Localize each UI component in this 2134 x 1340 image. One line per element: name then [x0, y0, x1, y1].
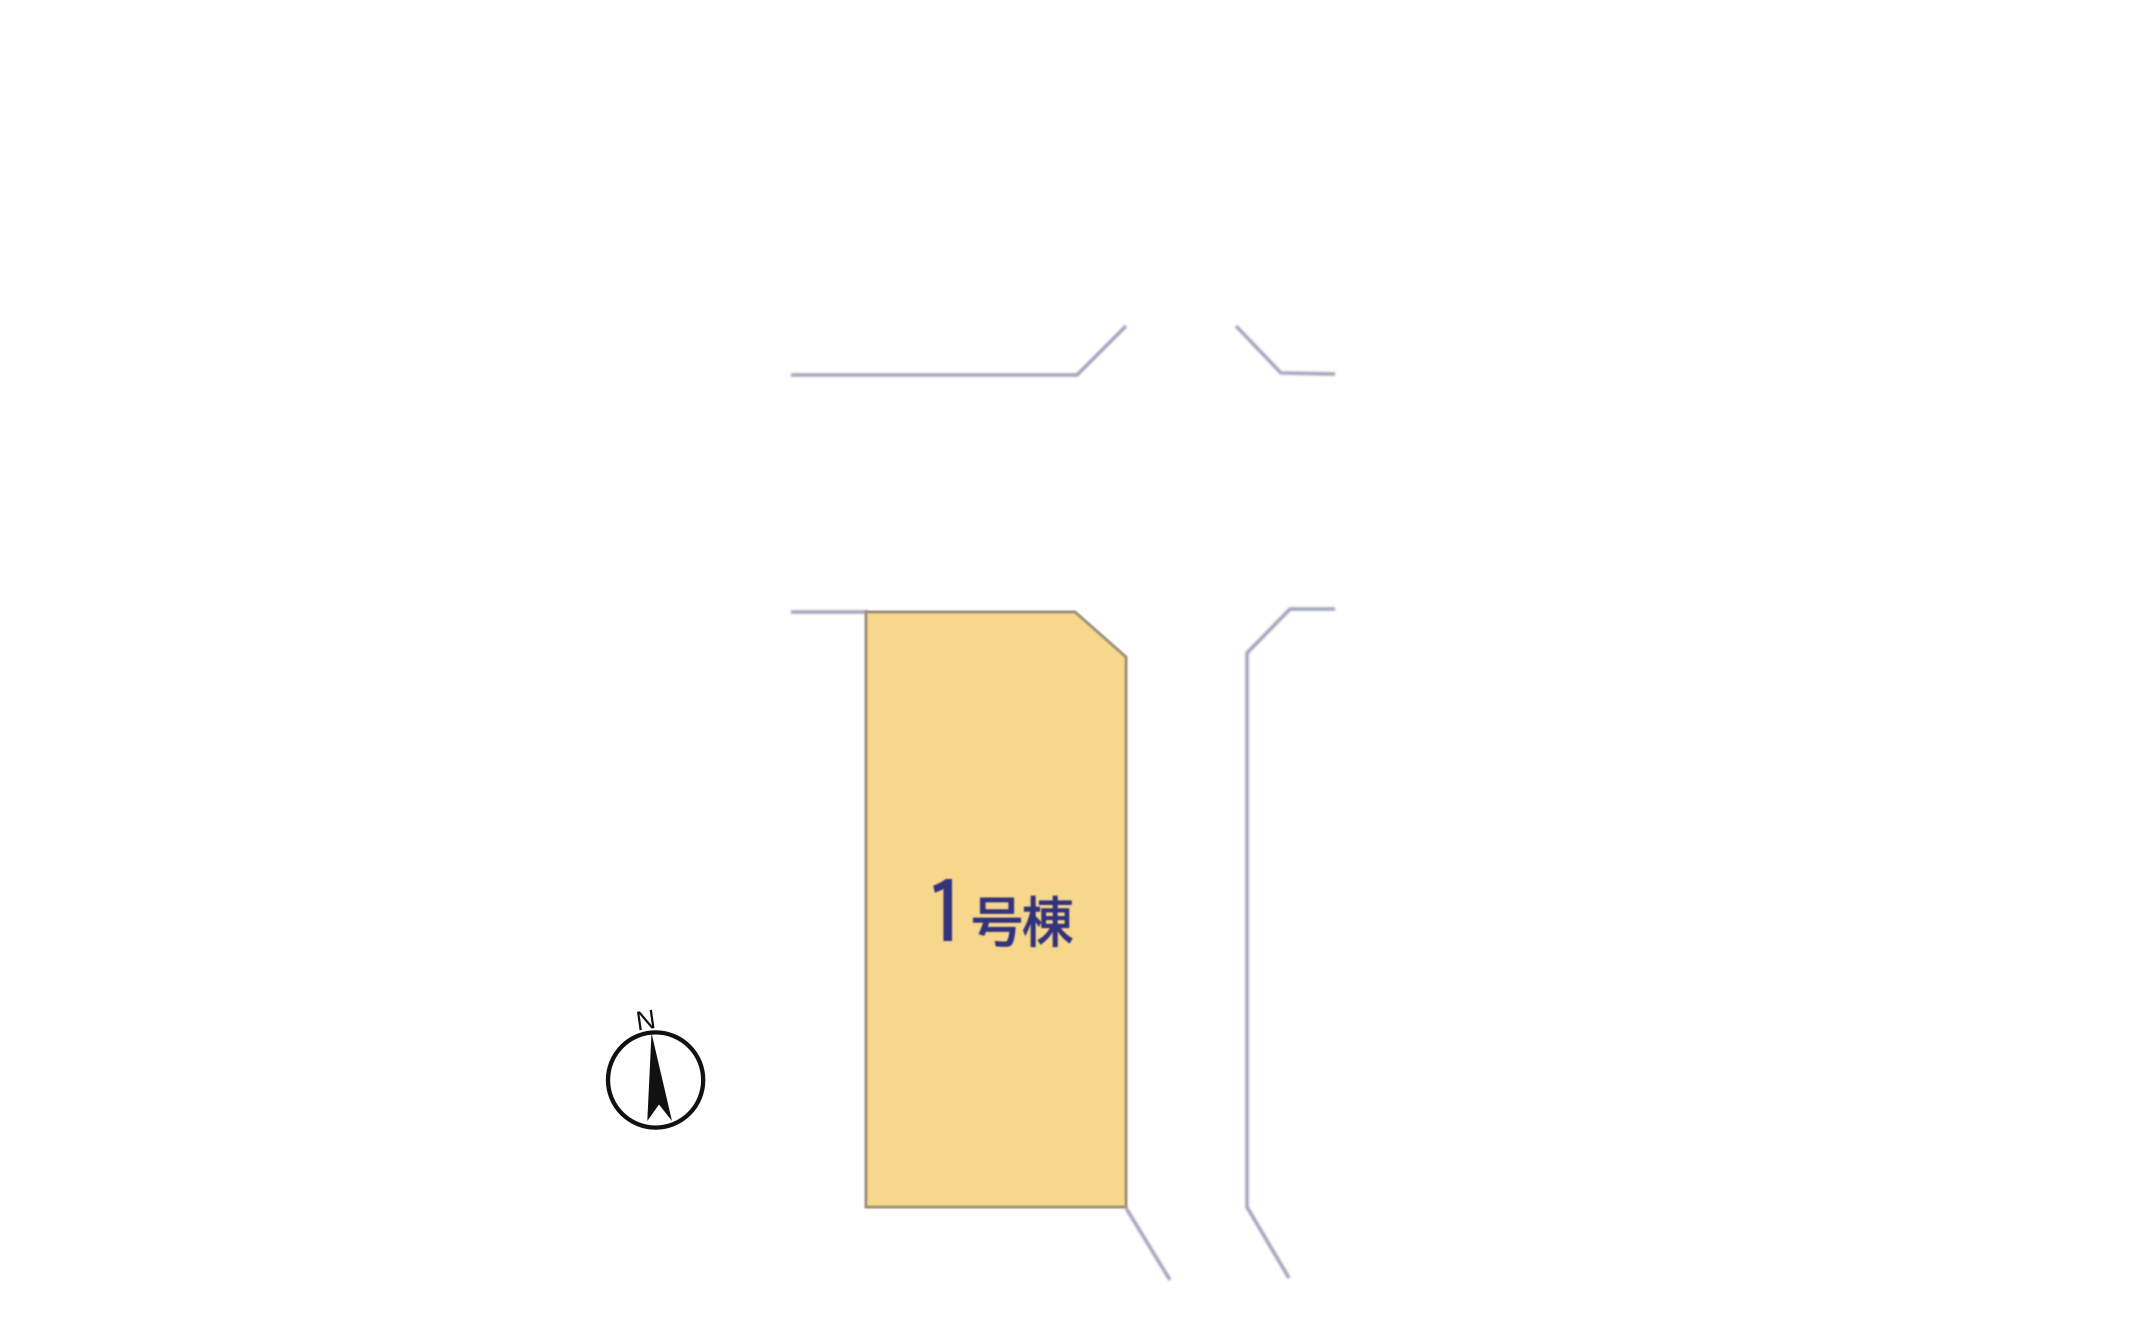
svg-text:N: N [634, 1004, 657, 1036]
